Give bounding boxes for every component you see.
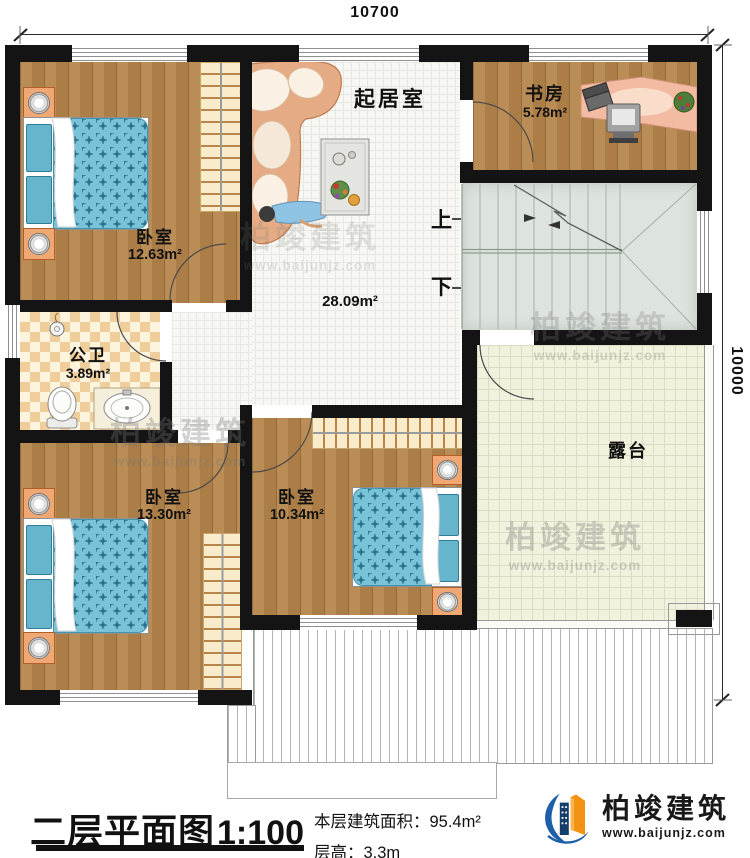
dimension-right: 10000 bbox=[727, 341, 745, 401]
dimension-line-right bbox=[722, 45, 723, 700]
lower-roof-hatch-notch bbox=[227, 705, 256, 764]
window-bedroombl bbox=[60, 690, 198, 705]
wall-bedroombl-bottom-b bbox=[198, 690, 252, 705]
window-bathroom bbox=[5, 305, 20, 358]
wall-bathroom-bottom-a bbox=[20, 430, 178, 443]
bed-middle bbox=[352, 487, 462, 587]
pillow bbox=[26, 525, 52, 575]
logo-site-text: www.baijunjz.com bbox=[602, 826, 730, 840]
floor-height-value: 3.3m bbox=[364, 844, 401, 858]
living-room-label: 起居室 bbox=[325, 88, 455, 111]
wall-terrace-top-a bbox=[462, 330, 480, 345]
wall-bedroomtl-bottom-b bbox=[226, 300, 240, 312]
hallway-floor-strip bbox=[240, 312, 252, 405]
bathroom-label: 公卫 3.89m² bbox=[48, 347, 128, 381]
floor-height-label: 层高： bbox=[314, 844, 364, 858]
pillow bbox=[26, 579, 52, 629]
pillow bbox=[433, 494, 459, 536]
stair-down-label: 下 bbox=[431, 271, 452, 301]
mattress bbox=[53, 118, 148, 229]
terrace-column bbox=[676, 610, 712, 627]
wall-bathroom-bottom-b bbox=[228, 430, 240, 443]
living-room-floor bbox=[247, 62, 460, 405]
wall-bedroomtl-right bbox=[240, 62, 252, 312]
lower-roof-hatch bbox=[253, 628, 713, 764]
area-value: 95.4m² bbox=[430, 813, 481, 831]
window-bedroommid bbox=[300, 615, 417, 630]
nightstand bbox=[432, 455, 463, 485]
pillow bbox=[26, 124, 52, 172]
wardrobe-middle bbox=[312, 417, 464, 449]
dimension-top: 10700 bbox=[300, 4, 450, 22]
living-room-area: 28.09m² bbox=[300, 294, 400, 311]
nightstand bbox=[432, 587, 463, 617]
plan-info: 本层建筑面积：95.4m² 层高：3.3m bbox=[314, 808, 481, 858]
nightstand bbox=[23, 87, 55, 119]
bedroom-bottomleft-label: 卧室 13.30m² bbox=[114, 489, 214, 524]
terrace-floor bbox=[477, 345, 705, 620]
terrace-railing-right bbox=[704, 345, 714, 620]
pillow bbox=[433, 540, 459, 582]
logo-icon bbox=[540, 788, 594, 846]
window-bedroomtl bbox=[72, 45, 187, 62]
bedroom-topleft-label: 卧室 12.63m² bbox=[105, 229, 205, 264]
wall-bathroom-right-b bbox=[160, 362, 172, 430]
bed-bottomleft bbox=[23, 518, 149, 634]
area-label: 本层建筑面积： bbox=[314, 813, 430, 831]
mattress bbox=[53, 519, 148, 633]
wardrobe-topleft bbox=[200, 62, 242, 212]
nightstand bbox=[23, 228, 55, 260]
nightstand bbox=[23, 488, 55, 520]
staircase-floor bbox=[462, 183, 697, 330]
window-staircase bbox=[697, 211, 712, 293]
wall-terrace-left bbox=[462, 330, 477, 630]
wall-study-divider-b bbox=[460, 162, 473, 170]
bed-topleft bbox=[23, 117, 149, 230]
nightstand bbox=[23, 632, 55, 664]
wall-bedroommid-bottom-b bbox=[417, 615, 462, 630]
stair-up-label: 上 bbox=[431, 204, 452, 234]
company-logo: 柏竣建筑 www.baijunjz.com bbox=[540, 788, 730, 846]
window-study bbox=[529, 45, 648, 62]
wall-left bbox=[5, 45, 20, 705]
floor-plan-canvas: 柏竣建筑www.baijunjz.com 柏竣建筑www.baijunjz.co… bbox=[0, 0, 750, 858]
terrace-label: 露台 bbox=[583, 442, 673, 462]
study-label: 书房 5.78m² bbox=[500, 85, 590, 120]
logo-brand-text: 柏竣建筑 bbox=[602, 795, 730, 823]
wall-bedroomtl-bottom-a bbox=[20, 300, 170, 312]
window-living bbox=[299, 45, 419, 62]
mattress bbox=[353, 488, 432, 586]
title-underline bbox=[36, 845, 304, 851]
pillow bbox=[26, 176, 52, 224]
wall-living-bottom bbox=[312, 405, 462, 418]
dimension-line-top bbox=[20, 34, 708, 35]
wall-right-upper bbox=[697, 45, 712, 211]
bedroom-middle-label: 卧室 10.34m² bbox=[247, 489, 347, 524]
wall-terrace-top-b bbox=[534, 330, 712, 345]
wall-bathroom-right-a bbox=[160, 300, 172, 312]
hallway-floor bbox=[172, 312, 240, 430]
wall-stair-top bbox=[460, 170, 697, 183]
wardrobe-bottomleft bbox=[203, 533, 242, 690]
wall-bedroombl-bottom-a bbox=[5, 690, 60, 705]
wall-study-divider-a bbox=[460, 62, 473, 100]
wall-bedroommid-bottom-a bbox=[240, 615, 300, 630]
lower-roof-outline bbox=[227, 762, 497, 799]
